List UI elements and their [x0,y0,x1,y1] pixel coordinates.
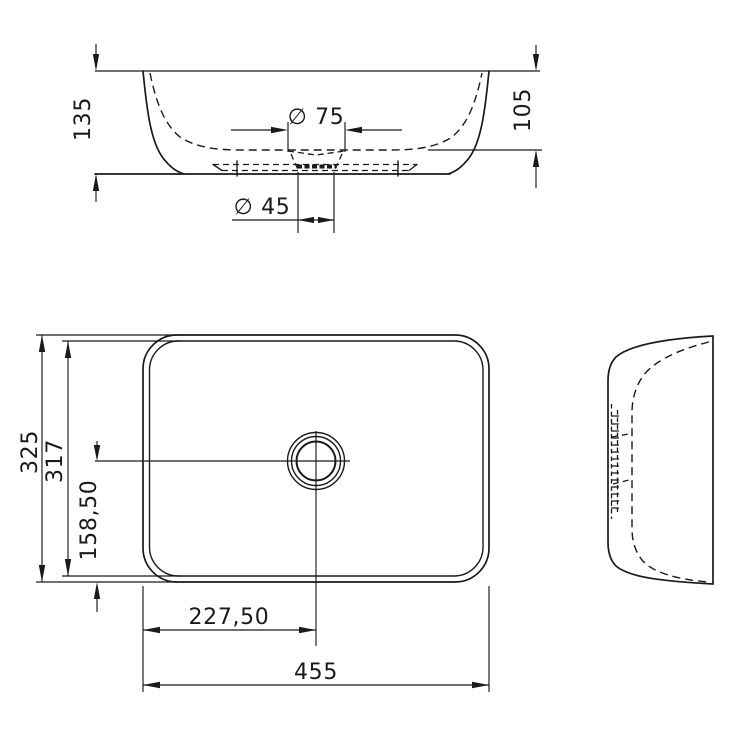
dim-bowl-depth: 105 [511,45,539,188]
front-elevation-view: 135 105 ∅ 75 ∅ 45 [71,44,542,233]
dim-label-227-50: 227,50 [189,605,270,630]
arrowhead [533,150,539,167]
arrowhead [94,445,100,461]
dim-drain-offset-left: 227,50 [143,605,316,633]
arrowhead [39,565,45,582]
recess-funnel-right [334,154,342,172]
outer-profile-left [143,71,184,174]
dim-label-158-50: 158,50 [77,480,102,561]
dim-recess-diameter: ∅ 75 [231,105,402,152]
side-outer-profile [608,336,713,584]
dim-label-dia75: ∅ 75 [288,105,345,130]
arrowhead [533,54,539,71]
arrowhead [143,627,160,633]
dim-label-105: 105 [511,88,536,132]
arrowhead [318,217,334,223]
dim-label-317: 317 [43,439,68,483]
recess-funnel-left [291,154,299,172]
recess-top-hidden-line [288,151,345,155]
foot-ring-end-right [409,165,417,171]
side-inner-bowl-hidden [632,342,709,582]
arrowhead [271,127,288,133]
arrowhead [94,582,100,599]
drawing-canvas: 135 105 ∅ 75 ∅ 45 [0,0,740,740]
foot-ring-end-left [213,165,222,171]
arrowhead [345,127,362,133]
dim-inner-depth: 317 [43,341,71,576]
arrowhead [298,217,314,223]
dim-drain-diameter: ∅ 45 [232,172,334,233]
arrowhead [93,174,99,191]
arrowhead [39,335,45,352]
arrowhead [472,682,489,688]
arrowhead [93,54,99,71]
dim-overall-depth: 325 [18,335,45,582]
arrowhead [299,627,316,633]
dim-label-455: 455 [294,660,338,685]
arrowhead [143,682,160,688]
dim-label-325: 325 [18,430,43,474]
side-elevation-view [608,336,713,584]
arrowhead [65,559,71,576]
outer-profile-right [448,71,489,174]
plan-view: 325 317 158,50 227,50 455 [18,335,489,692]
basin-technical-drawing: 135 105 ∅ 75 ∅ 45 [0,0,740,740]
ext-line [298,172,334,233]
dim-overall-height: 135 [71,44,99,202]
dim-label-dia45: ∅ 45 [234,195,291,220]
dim-label-135: 135 [71,97,96,141]
dim-overall-width: 455 [143,660,489,688]
side-drain-hatch [611,416,619,508]
side-recess-funnel-top [612,434,631,438]
dim-drain-offset-front: 158,50 [77,441,102,612]
arrowhead [65,341,71,358]
